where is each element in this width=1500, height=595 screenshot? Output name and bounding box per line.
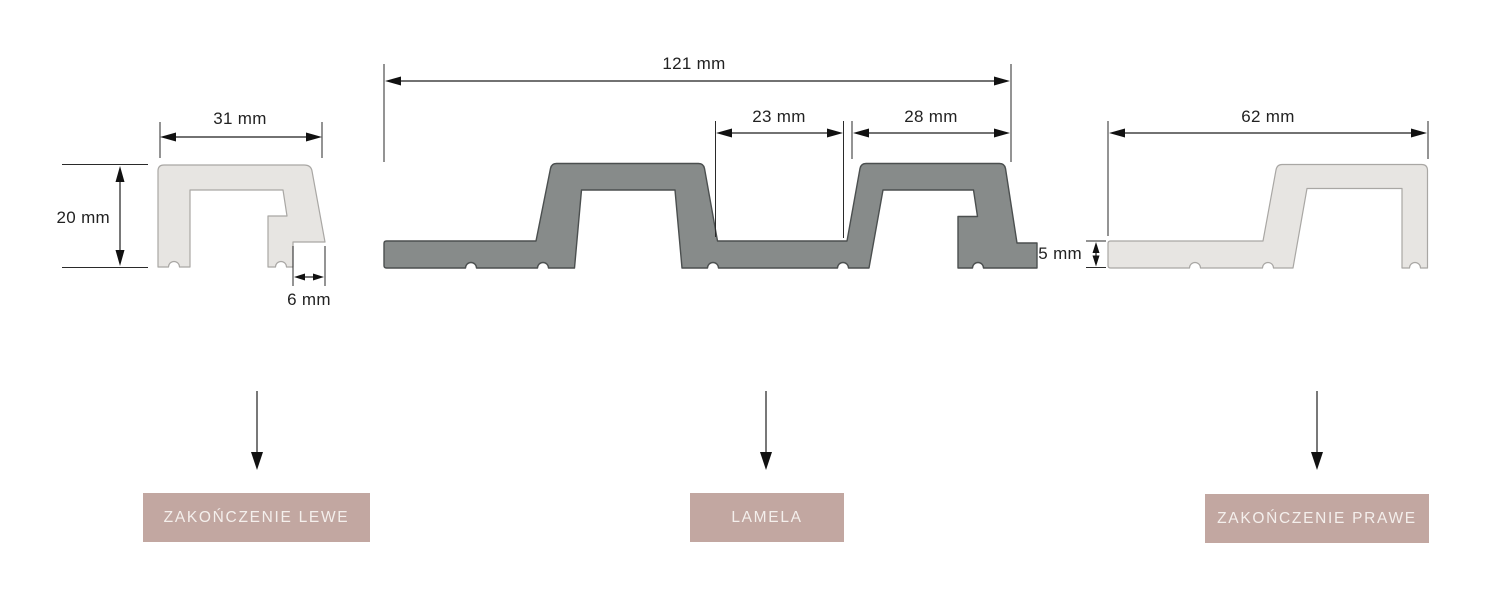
right-endcap-profile-shape	[1108, 165, 1428, 269]
arrow-right-icon	[994, 129, 1010, 138]
arrow-down-icon	[760, 452, 772, 470]
arrow-up-icon	[1093, 242, 1100, 253]
arrow-right-icon	[1411, 129, 1427, 138]
label-zakonczenie-prawe: ZAKOŃCZENIE PRAWE	[1205, 494, 1429, 543]
arrow-right-icon	[306, 133, 322, 142]
pointer-arrow-right	[1311, 391, 1323, 470]
arrow-right-icon	[313, 274, 324, 281]
arrow-left-icon	[294, 274, 305, 281]
arrow-down-icon	[116, 250, 125, 266]
dim-label-20mm: 20 mm	[57, 208, 110, 227]
dim-label-62mm: 62 mm	[1241, 107, 1294, 126]
dim-label-6mm: 6 mm	[287, 290, 331, 309]
arrow-down-icon	[1311, 452, 1323, 470]
dimension-5mm: 5 mm	[1038, 241, 1106, 268]
arrow-left-icon	[160, 133, 176, 142]
dim-label-23mm: 23 mm	[752, 107, 805, 126]
arrow-down-icon	[1093, 256, 1100, 267]
arrow-left-icon	[385, 77, 401, 86]
profile-diagram: 31 mm 20 mm 6 mm 1	[0, 0, 1500, 595]
dimension-20mm: 20 mm	[57, 165, 148, 268]
dim-label-121mm: 121 mm	[662, 54, 725, 73]
dimension-6mm: 6 mm	[287, 246, 331, 309]
label-lamela: LAMELA	[690, 493, 844, 542]
arrow-down-icon	[251, 452, 263, 470]
dim-label-28mm: 28 mm	[904, 107, 957, 126]
arrow-left-icon	[1109, 129, 1125, 138]
arrow-right-icon	[827, 129, 843, 138]
dimension-31mm: 31 mm	[160, 109, 322, 158]
dimension-23mm: 23 mm	[716, 107, 844, 238]
pointer-arrow-left	[251, 391, 263, 470]
arrow-left-icon	[853, 129, 869, 138]
dim-label-5mm: 5 mm	[1038, 244, 1082, 263]
arrow-up-icon	[116, 166, 125, 182]
dim-label-31mm: 31 mm	[213, 109, 266, 128]
pointer-arrow-middle	[760, 391, 772, 470]
label-zakonczenie-lewe: ZAKOŃCZENIE LEWE	[143, 493, 370, 542]
lamela-profile-shape	[384, 164, 1037, 269]
left-endcap-profile-shape	[158, 165, 325, 267]
arrow-left-icon	[716, 129, 732, 138]
arrow-right-icon	[994, 77, 1010, 86]
dimension-28mm: 28 mm	[852, 107, 1010, 159]
